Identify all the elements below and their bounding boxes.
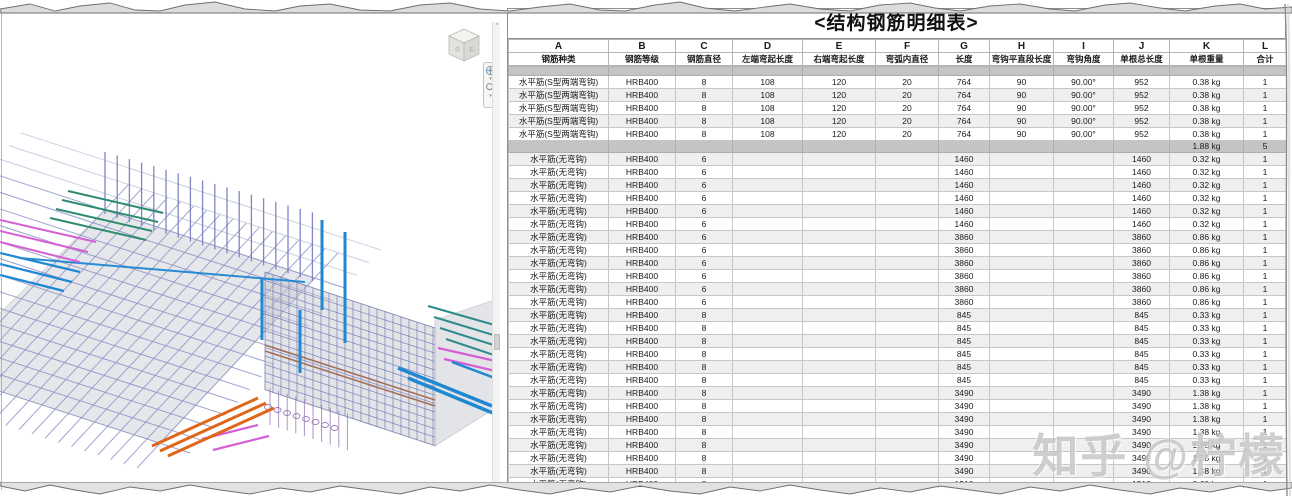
cell[interactable]: 90 <box>990 75 1054 88</box>
cell[interactable] <box>1054 386 1114 399</box>
cell[interactable] <box>876 204 939 217</box>
cell[interactable]: 1 <box>1244 360 1287 373</box>
cell[interactable]: 1 <box>1244 334 1287 347</box>
cell[interactable]: 764 <box>939 101 990 114</box>
cell[interactable]: 845 <box>1114 308 1170 321</box>
view-scrollbar[interactable]: ^ <box>492 22 500 484</box>
cell[interactable] <box>803 412 876 425</box>
cell[interactable]: 8 <box>676 477 733 490</box>
cell[interactable] <box>990 321 1054 334</box>
cell[interactable] <box>990 204 1054 217</box>
cell[interactable] <box>733 256 803 269</box>
cell[interactable]: 8 <box>676 347 733 360</box>
total-cell[interactable] <box>609 140 676 152</box>
cell[interactable] <box>733 425 803 438</box>
cell[interactable]: HRB400 <box>609 386 676 399</box>
cell[interactable] <box>733 373 803 386</box>
cell[interactable] <box>1054 295 1114 308</box>
cell[interactable]: 1460 <box>1114 152 1170 165</box>
table-row[interactable]: 水平筋(无弯钩)HRB4008349034901.38 kg1 <box>509 399 1287 412</box>
cell[interactable]: 水平筋(无弯钩) <box>509 451 609 464</box>
cell[interactable] <box>1054 243 1114 256</box>
cell[interactable]: 6 <box>676 230 733 243</box>
table-row[interactable]: 水平筋(无弯钩)HRB4006146014600.32 kg1 <box>509 152 1287 165</box>
cell[interactable]: 水平筋(无弯钩) <box>509 425 609 438</box>
cell[interactable]: 6 <box>676 269 733 282</box>
cell[interactable]: 952 <box>1114 127 1170 140</box>
cell[interactable] <box>733 477 803 490</box>
cell[interactable]: HRB400 <box>609 165 676 178</box>
cell[interactable]: 0.32 kg <box>1170 165 1244 178</box>
table-row[interactable]: 水平筋(S型两端弯钩)HRB4008108120207649090.00°952… <box>509 114 1287 127</box>
total-cell[interactable] <box>1054 140 1114 152</box>
cell[interactable] <box>876 347 939 360</box>
cell[interactable]: 20 <box>876 75 939 88</box>
cell[interactable]: 1 <box>1244 282 1287 295</box>
column-letter[interactable]: K <box>1170 40 1244 53</box>
cell[interactable]: 90.00° <box>1054 127 1114 140</box>
scrollbar-thumb[interactable] <box>494 334 500 350</box>
cell[interactable]: 3860 <box>1114 243 1170 256</box>
cell[interactable] <box>1054 347 1114 360</box>
column-letter[interactable]: C <box>676 40 733 53</box>
cell[interactable]: 1 <box>1244 101 1287 114</box>
cell[interactable]: 水平筋(无弯钩) <box>509 269 609 282</box>
cell[interactable]: 1460 <box>939 217 990 230</box>
cell[interactable]: 0.32 kg <box>1170 204 1244 217</box>
column-header[interactable]: 钢筋直径 <box>676 53 733 67</box>
cell[interactable]: 108 <box>733 101 803 114</box>
cell[interactable] <box>733 386 803 399</box>
cell[interactable]: 764 <box>939 114 990 127</box>
cell[interactable] <box>803 399 876 412</box>
cell[interactable]: 8 <box>676 373 733 386</box>
cell[interactable]: 1 <box>1244 88 1287 101</box>
table-row[interactable]: 水平筋(无弯钩)HRB4006386038600.86 kg1 <box>509 295 1287 308</box>
cell[interactable]: 6 <box>676 165 733 178</box>
cell[interactable] <box>876 230 939 243</box>
cell[interactable]: 0.60 kg <box>1170 490 1244 500</box>
table-row[interactable]: 水平筋(S型两端弯钩)HRB4008108120207649090.00°952… <box>509 101 1287 114</box>
column-letter[interactable]: G <box>939 40 990 53</box>
cell[interactable] <box>876 477 939 490</box>
total-cell[interactable]: 1.88 kg <box>1170 140 1244 152</box>
cell[interactable]: 845 <box>1114 347 1170 360</box>
cell[interactable]: 1460 <box>1114 217 1170 230</box>
cell[interactable]: 0.33 kg <box>1170 308 1244 321</box>
cell[interactable] <box>733 347 803 360</box>
cell[interactable] <box>1054 256 1114 269</box>
cell[interactable]: 1510 <box>939 490 990 500</box>
cell[interactable] <box>876 451 939 464</box>
cell[interactable]: 90 <box>990 127 1054 140</box>
cell[interactable]: 水平筋(无弯钩) <box>509 178 609 191</box>
cell[interactable]: 3860 <box>939 282 990 295</box>
cell[interactable]: 8 <box>676 360 733 373</box>
cell[interactable]: 8 <box>676 438 733 451</box>
cell[interactable] <box>990 490 1054 500</box>
table-row[interactable]: 水平筋(S型两端弯钩)HRB4008108120207649090.00°952… <box>509 75 1287 88</box>
cell[interactable]: 8 <box>676 127 733 140</box>
cell[interactable]: 764 <box>939 75 990 88</box>
table-row[interactable]: 水平筋(无弯钩)HRB4006386038600.86 kg1 <box>509 269 1287 282</box>
total-cell[interactable] <box>733 140 803 152</box>
total-cell[interactable] <box>1114 140 1170 152</box>
table-row[interactable]: 水平筋(无弯钩)HRB40088458450.33 kg1 <box>509 334 1287 347</box>
cell[interactable]: HRB400 <box>609 191 676 204</box>
cell[interactable] <box>990 360 1054 373</box>
cell[interactable] <box>803 295 876 308</box>
cell[interactable] <box>803 464 876 477</box>
cell[interactable]: 108 <box>733 88 803 101</box>
table-row[interactable]: 水平筋(无弯钩)HRB4006146014600.32 kg1 <box>509 204 1287 217</box>
cell[interactable] <box>876 321 939 334</box>
cell[interactable] <box>803 451 876 464</box>
cell[interactable]: 8 <box>676 321 733 334</box>
cell[interactable] <box>990 334 1054 347</box>
cell[interactable]: HRB400 <box>609 75 676 88</box>
cell[interactable]: 3490 <box>939 464 990 477</box>
cell[interactable]: 3490 <box>1114 399 1170 412</box>
cell[interactable] <box>990 152 1054 165</box>
cell[interactable] <box>803 230 876 243</box>
cell[interactable]: 1 <box>1244 178 1287 191</box>
cell[interactable]: 水平筋(无弯钩) <box>509 321 609 334</box>
cell[interactable]: 1.38 kg <box>1170 386 1244 399</box>
table-row[interactable]: 水平筋(无弯钩)HRB40088458450.33 kg1 <box>509 347 1287 360</box>
cell[interactable]: 水平筋(S型两端弯钩) <box>509 75 609 88</box>
cell[interactable]: 水平筋(S型两端弯钩) <box>509 101 609 114</box>
cell[interactable]: 1510 <box>1114 490 1170 500</box>
cell[interactable]: 8 <box>676 88 733 101</box>
cell[interactable]: 3860 <box>939 230 990 243</box>
cell[interactable]: HRB400 <box>609 321 676 334</box>
cell[interactable]: HRB400 <box>609 334 676 347</box>
cell[interactable] <box>803 490 876 500</box>
group-total-row[interactable]: 1.88 kg5 <box>509 140 1287 152</box>
cell[interactable]: 3490 <box>939 438 990 451</box>
total-cell[interactable] <box>676 140 733 152</box>
cell[interactable] <box>990 178 1054 191</box>
cell[interactable] <box>1054 269 1114 282</box>
cell[interactable] <box>1054 373 1114 386</box>
table-row[interactable]: 水平筋(S型两端弯钩)HRB4008108120207649090.00°952… <box>509 88 1287 101</box>
cell[interactable]: 0.33 kg <box>1170 347 1244 360</box>
cell[interactable]: 0.38 kg <box>1170 88 1244 101</box>
cell[interactable] <box>803 425 876 438</box>
cell[interactable]: 6 <box>676 178 733 191</box>
column-letter[interactable]: L <box>1244 40 1287 53</box>
cell[interactable]: 20 <box>876 101 939 114</box>
cell[interactable]: 6 <box>676 282 733 295</box>
cell[interactable]: 1 <box>1244 217 1287 230</box>
cell[interactable] <box>990 308 1054 321</box>
cell[interactable] <box>1054 360 1114 373</box>
cell[interactable]: 845 <box>939 321 990 334</box>
table-row[interactable]: 水平筋(无弯钩)HRB4006146014600.32 kg1 <box>509 217 1287 230</box>
cell[interactable]: 1 <box>1244 204 1287 217</box>
cell[interactable]: 3490 <box>939 425 990 438</box>
column-letter[interactable]: E <box>803 40 876 53</box>
table-row[interactable]: 水平筋(无弯钩)HRB4008349034901.38 kg1 <box>509 386 1287 399</box>
cell[interactable]: 845 <box>1114 321 1170 334</box>
cell[interactable]: 水平筋(无弯钩) <box>509 373 609 386</box>
cell[interactable] <box>803 373 876 386</box>
cell[interactable]: 0.32 kg <box>1170 178 1244 191</box>
table-row[interactable]: 水平筋(无弯钩)HRB4008151015100.60 kg1 <box>509 490 1287 500</box>
cell[interactable]: HRB400 <box>609 412 676 425</box>
cell[interactable]: HRB400 <box>609 152 676 165</box>
cell[interactable]: 845 <box>939 334 990 347</box>
cell[interactable]: HRB400 <box>609 178 676 191</box>
cell[interactable] <box>990 269 1054 282</box>
cell[interactable]: HRB400 <box>609 114 676 127</box>
cell[interactable] <box>733 490 803 500</box>
cell[interactable] <box>990 243 1054 256</box>
cell[interactable]: 0.38 kg <box>1170 114 1244 127</box>
cell[interactable]: 8 <box>676 425 733 438</box>
viewcube-icon[interactable]: 前 右 <box>446 26 482 64</box>
cell[interactable]: 水平筋(无弯钩) <box>509 230 609 243</box>
cell[interactable] <box>990 217 1054 230</box>
cell[interactable] <box>733 282 803 295</box>
cell[interactable]: 1460 <box>1114 204 1170 217</box>
cell[interactable]: 1460 <box>939 165 990 178</box>
column-letter[interactable]: H <box>990 40 1054 53</box>
cell[interactable] <box>733 217 803 230</box>
cell[interactable]: 952 <box>1114 101 1170 114</box>
cell[interactable]: 845 <box>1114 334 1170 347</box>
cell[interactable]: HRB400 <box>609 217 676 230</box>
total-cell[interactable]: 5 <box>1244 140 1287 152</box>
table-row[interactable]: 水平筋(无弯钩)HRB40088458450.33 kg1 <box>509 308 1287 321</box>
table-row[interactable]: 水平筋(无弯钩)HRB4006386038600.86 kg1 <box>509 256 1287 269</box>
table-row[interactable]: 水平筋(S型两端弯钩)HRB4008108120207649090.00°952… <box>509 127 1287 140</box>
cell[interactable] <box>803 217 876 230</box>
cell[interactable] <box>803 334 876 347</box>
cell[interactable]: HRB400 <box>609 230 676 243</box>
cell[interactable]: 90.00° <box>1054 114 1114 127</box>
table-row[interactable]: 水平筋(无弯钩)HRB4006146014600.32 kg1 <box>509 191 1287 204</box>
table-row[interactable]: 水平筋(无弯钩)HRB4006386038600.86 kg1 <box>509 282 1287 295</box>
cell[interactable]: 952 <box>1114 114 1170 127</box>
cell[interactable]: HRB400 <box>609 477 676 490</box>
cell[interactable]: 1460 <box>939 178 990 191</box>
column-header[interactable]: 单根总长度 <box>1114 53 1170 67</box>
cell[interactable]: 952 <box>1114 75 1170 88</box>
cell[interactable]: 1510 <box>939 477 990 490</box>
cell[interactable]: 120 <box>803 114 876 127</box>
cell[interactable]: 3860 <box>939 295 990 308</box>
cell[interactable]: 水平筋(无弯钩) <box>509 308 609 321</box>
column-header[interactable]: 长度 <box>939 53 990 67</box>
cell[interactable] <box>733 178 803 191</box>
cell[interactable]: 90.00° <box>1054 88 1114 101</box>
cell[interactable]: 6 <box>676 243 733 256</box>
cell[interactable]: 8 <box>676 75 733 88</box>
cell[interactable] <box>990 295 1054 308</box>
cell[interactable]: 水平筋(无弯钩) <box>509 477 609 490</box>
cell[interactable] <box>876 360 939 373</box>
cell[interactable]: 764 <box>939 127 990 140</box>
cell[interactable]: 108 <box>733 75 803 88</box>
cell[interactable] <box>876 464 939 477</box>
table-row[interactable]: 水平筋(无弯钩)HRB4006146014600.32 kg1 <box>509 178 1287 191</box>
cell[interactable] <box>876 269 939 282</box>
column-header[interactable]: 右端弯起长度 <box>803 53 876 67</box>
cell[interactable]: 1 <box>1244 114 1287 127</box>
cell[interactable]: 6 <box>676 152 733 165</box>
cell[interactable]: 3490 <box>939 399 990 412</box>
cell[interactable]: HRB400 <box>609 243 676 256</box>
cell[interactable]: HRB400 <box>609 464 676 477</box>
cell[interactable]: 1 <box>1244 256 1287 269</box>
table-row[interactable]: 水平筋(无弯钩)HRB4006146014600.32 kg1 <box>509 165 1287 178</box>
cell[interactable]: 1 <box>1244 152 1287 165</box>
cell[interactable] <box>990 386 1054 399</box>
cell[interactable]: 120 <box>803 75 876 88</box>
cell[interactable]: 1460 <box>939 204 990 217</box>
cell[interactable]: 6 <box>676 256 733 269</box>
cell[interactable]: 8 <box>676 399 733 412</box>
cell[interactable] <box>803 321 876 334</box>
cell[interactable]: 90 <box>990 114 1054 127</box>
table-row[interactable]: 水平筋(无弯钩)HRB40088458450.33 kg1 <box>509 321 1287 334</box>
cell[interactable]: 水平筋(S型两端弯钩) <box>509 127 609 140</box>
cell[interactable] <box>733 412 803 425</box>
cell[interactable]: 0.33 kg <box>1170 373 1244 386</box>
cell[interactable] <box>1054 230 1114 243</box>
cell[interactable]: 3860 <box>939 256 990 269</box>
cell[interactable] <box>990 347 1054 360</box>
cell[interactable]: 20 <box>876 127 939 140</box>
cell[interactable] <box>1054 217 1114 230</box>
cell[interactable]: 845 <box>939 360 990 373</box>
cell[interactable]: 1 <box>1244 308 1287 321</box>
cell[interactable]: 3860 <box>939 243 990 256</box>
cell[interactable]: 1 <box>1244 295 1287 308</box>
cell[interactable]: 845 <box>939 308 990 321</box>
cell[interactable] <box>803 165 876 178</box>
cell[interactable] <box>1054 334 1114 347</box>
cell[interactable]: HRB400 <box>609 373 676 386</box>
cell[interactable] <box>1054 178 1114 191</box>
cell[interactable]: 8 <box>676 412 733 425</box>
table-row[interactable]: 水平筋(无弯钩)HRB40088458450.33 kg1 <box>509 360 1287 373</box>
cell[interactable] <box>803 438 876 451</box>
total-cell[interactable] <box>939 140 990 152</box>
cell[interactable]: 0.38 kg <box>1170 75 1244 88</box>
cell[interactable]: 8 <box>676 490 733 500</box>
cell[interactable]: HRB400 <box>609 399 676 412</box>
cell[interactable]: 3860 <box>1114 269 1170 282</box>
column-letter[interactable]: I <box>1054 40 1114 53</box>
cell[interactable]: 0.32 kg <box>1170 152 1244 165</box>
cell[interactable] <box>1054 321 1114 334</box>
cell[interactable]: 3860 <box>939 269 990 282</box>
cell[interactable]: 6 <box>676 191 733 204</box>
cell[interactable] <box>990 282 1054 295</box>
cell[interactable]: 1 <box>1244 347 1287 360</box>
column-header[interactable]: 弯钩角度 <box>1054 53 1114 67</box>
cell[interactable] <box>803 282 876 295</box>
cell[interactable]: 水平筋(无弯钩) <box>509 386 609 399</box>
cell[interactable]: 1460 <box>939 191 990 204</box>
cell[interactable]: 3860 <box>1114 282 1170 295</box>
cell[interactable]: 水平筋(无弯钩) <box>509 204 609 217</box>
column-letter[interactable]: B <box>609 40 676 53</box>
cell[interactable] <box>876 178 939 191</box>
cell[interactable]: 3860 <box>1114 295 1170 308</box>
cell[interactable]: 0.38 kg <box>1170 127 1244 140</box>
cell[interactable] <box>733 230 803 243</box>
cell[interactable] <box>733 334 803 347</box>
cell[interactable] <box>876 399 939 412</box>
cell[interactable] <box>803 152 876 165</box>
cell[interactable]: 0.33 kg <box>1170 321 1244 334</box>
cell[interactable]: 8 <box>676 101 733 114</box>
cell[interactable]: HRB400 <box>609 451 676 464</box>
cell[interactable]: 952 <box>1114 88 1170 101</box>
cell[interactable]: 水平筋(无弯钩) <box>509 243 609 256</box>
cell[interactable]: HRB400 <box>609 204 676 217</box>
cell[interactable]: 8 <box>676 308 733 321</box>
cell[interactable] <box>1054 399 1114 412</box>
cell[interactable] <box>876 256 939 269</box>
column-letter[interactable]: A <box>509 40 609 53</box>
cell[interactable] <box>990 191 1054 204</box>
cell[interactable] <box>1054 490 1114 500</box>
cell[interactable]: 水平筋(无弯钩) <box>509 191 609 204</box>
cell[interactable]: 845 <box>939 373 990 386</box>
cell[interactable] <box>876 308 939 321</box>
cell[interactable]: 8 <box>676 451 733 464</box>
cell[interactable] <box>876 243 939 256</box>
cell[interactable]: HRB400 <box>609 101 676 114</box>
total-cell[interactable] <box>876 140 939 152</box>
cell[interactable]: 1 <box>1244 321 1287 334</box>
cell[interactable]: HRB400 <box>609 295 676 308</box>
cell[interactable] <box>803 204 876 217</box>
column-header[interactable]: 左端弯起长度 <box>733 53 803 67</box>
cell[interactable] <box>876 152 939 165</box>
cell[interactable]: 3490 <box>939 451 990 464</box>
cell[interactable]: 1 <box>1244 127 1287 140</box>
cell[interactable] <box>876 438 939 451</box>
cell[interactable] <box>733 152 803 165</box>
cell[interactable]: 1 <box>1244 373 1287 386</box>
cell[interactable]: 6 <box>676 217 733 230</box>
column-header[interactable]: 弯弧内直径 <box>876 53 939 67</box>
cell[interactable]: 1460 <box>1114 191 1170 204</box>
cell[interactable] <box>1054 165 1114 178</box>
3d-view-panel[interactable]: 前 右 ▾ ▾ ^ <box>0 10 500 488</box>
cell[interactable]: 水平筋(无弯钩) <box>509 490 609 500</box>
cell[interactable] <box>876 334 939 347</box>
column-header[interactable]: 钢筋种类 <box>509 53 609 67</box>
cell[interactable]: HRB400 <box>609 269 676 282</box>
cell[interactable]: HRB400 <box>609 490 676 500</box>
column-header[interactable]: 钢筋等级 <box>609 53 676 67</box>
cell[interactable]: 120 <box>803 88 876 101</box>
cell[interactable]: 3860 <box>1114 230 1170 243</box>
cell[interactable]: 水平筋(无弯钩) <box>509 282 609 295</box>
cell[interactable] <box>876 191 939 204</box>
cell[interactable] <box>803 256 876 269</box>
cell[interactable]: 6 <box>676 204 733 217</box>
cell[interactable]: HRB400 <box>609 425 676 438</box>
cell[interactable]: 1 <box>1244 165 1287 178</box>
